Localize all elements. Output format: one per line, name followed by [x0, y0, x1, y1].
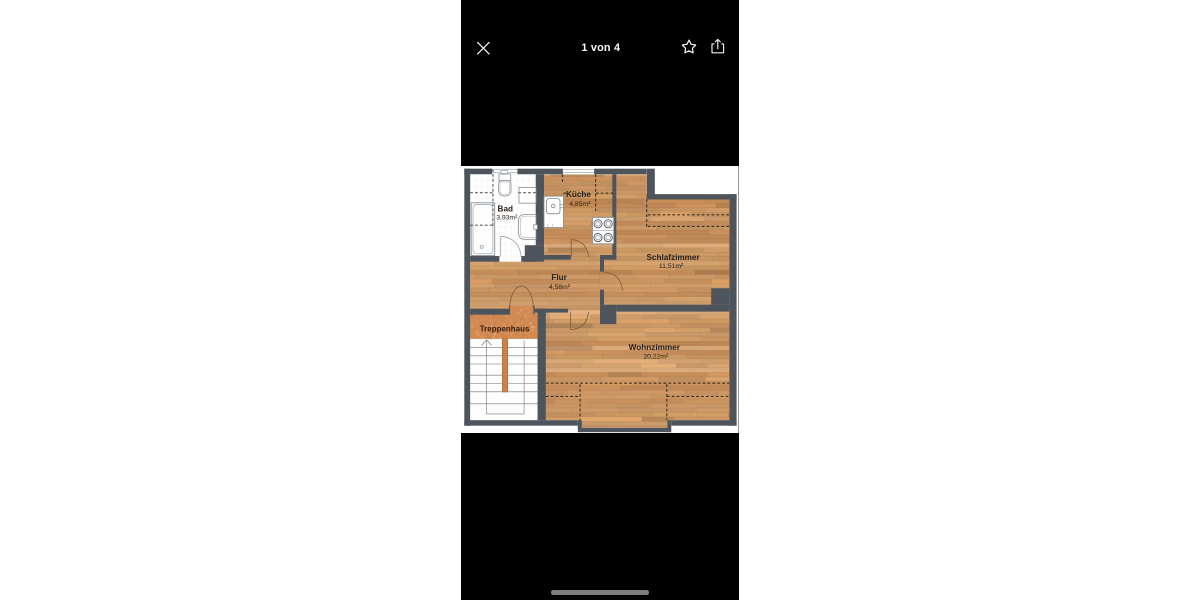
svg-text:3,93m²: 3,93m² — [496, 214, 518, 221]
svg-text:1 von 4: 1 von 4 — [582, 42, 621, 54]
svg-text:4,58m²: 4,58m² — [549, 284, 571, 291]
svg-text:20,22m²: 20,22m² — [644, 353, 670, 360]
svg-text:Küche: Küche — [566, 190, 591, 199]
svg-text:Wohnzimmer: Wohnzimmer — [629, 343, 681, 352]
svg-text:Bad: Bad — [498, 204, 513, 213]
svg-text:Treppenhaus: Treppenhaus — [480, 324, 530, 333]
svg-text:Flur: Flur — [552, 273, 568, 282]
svg-text:4,85m²: 4,85m² — [569, 201, 591, 208]
svg-text:Schlafzimmer: Schlafzimmer — [647, 253, 701, 262]
svg-text:11,51m²: 11,51m² — [659, 263, 684, 270]
